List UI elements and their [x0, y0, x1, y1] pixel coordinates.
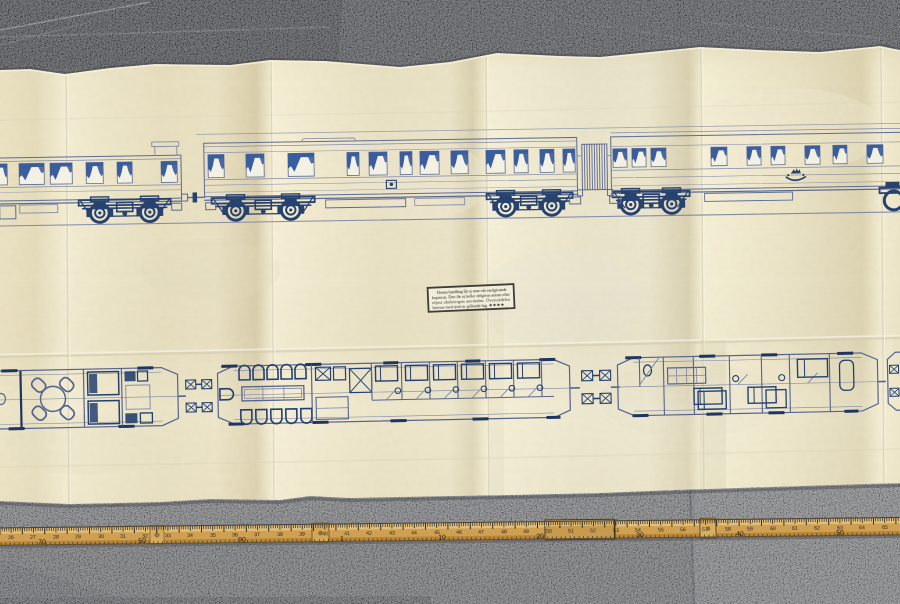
svg-text:55: 55: [658, 527, 664, 533]
svg-text:26: 26: [8, 535, 14, 541]
svg-text:46: 46: [456, 530, 462, 536]
svg-text:48: 48: [501, 529, 507, 535]
svg-text:33: 33: [165, 533, 171, 539]
svg-text:52: 52: [590, 528, 596, 534]
svg-text:28: 28: [53, 535, 59, 541]
svg-text:35: 35: [210, 533, 216, 539]
svg-text:61: 61: [792, 526, 798, 532]
svg-text:62: 62: [814, 526, 820, 532]
svg-text:60: 60: [770, 526, 776, 532]
svg-text:41: 41: [344, 531, 350, 537]
svg-text:36: 36: [232, 532, 238, 538]
svg-text:34: 34: [187, 533, 193, 539]
svg-text:56: 56: [680, 527, 686, 533]
svg-text:31: 31: [120, 534, 126, 540]
svg-text:51: 51: [568, 528, 574, 534]
svg-text:50: 50: [546, 529, 552, 535]
svg-text:27: 27: [30, 535, 36, 541]
svg-text:40: 40: [322, 531, 328, 537]
svg-text:44: 44: [411, 530, 417, 536]
svg-text:64: 64: [859, 525, 865, 531]
svg-text:42: 42: [366, 531, 372, 537]
svg-text:47: 47: [478, 530, 484, 536]
svg-text:49: 49: [523, 529, 529, 535]
svg-text:38: 38: [277, 532, 283, 538]
svg-text:43: 43: [389, 531, 395, 537]
svg-text:39: 39: [299, 532, 305, 538]
svg-text:29: 29: [75, 534, 81, 540]
svg-text:59: 59: [747, 526, 753, 532]
svg-text:37: 37: [254, 532, 260, 538]
svg-text:30: 30: [98, 534, 104, 540]
svg-text:58: 58: [725, 527, 731, 533]
svg-text:65: 65: [882, 525, 888, 531]
